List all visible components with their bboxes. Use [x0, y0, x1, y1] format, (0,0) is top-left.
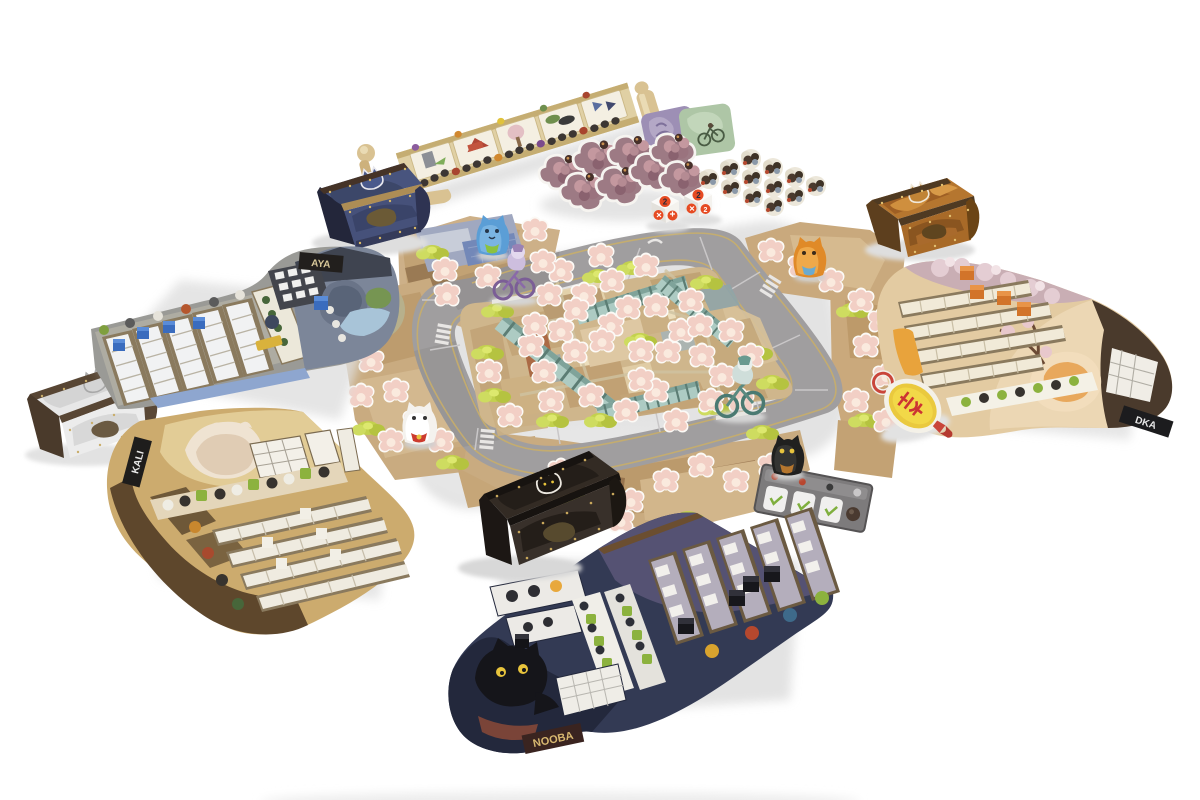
svg-text:2: 2: [696, 191, 701, 200]
svg-text:AYA: AYA: [311, 258, 331, 271]
svg-text:2: 2: [663, 198, 668, 207]
svg-text:2: 2: [704, 207, 708, 214]
